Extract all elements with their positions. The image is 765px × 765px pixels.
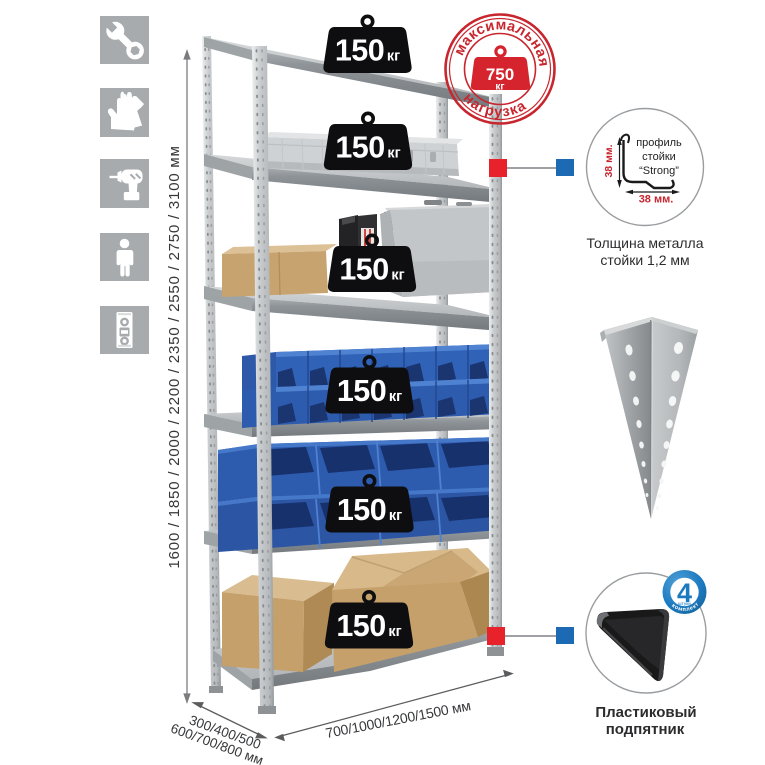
svg-text:штуки: штуки — [678, 601, 691, 606]
svg-text:стойки 1,2 мм: стойки 1,2 мм — [600, 252, 689, 268]
svg-text:кг: кг — [495, 82, 504, 93]
svg-text:подпятник: подпятник — [606, 721, 685, 738]
svg-text:Толщина металла: Толщина металла — [587, 235, 704, 251]
svg-text:профиль: профиль — [636, 137, 682, 149]
svg-text:стойки: стойки — [642, 151, 676, 163]
svg-text:38 мм.: 38 мм. — [639, 194, 674, 206]
svg-text:Пластиковый: Пластиковый — [595, 704, 696, 721]
svg-text:38 мм.: 38 мм. — [603, 144, 615, 177]
svg-text:“Strong”: “Strong” — [639, 165, 679, 177]
svg-text:1600 / 1850 / 2000 / 2200 / 23: 1600 / 1850 / 2000 / 2200 / 2350 / 2550 … — [166, 145, 183, 568]
